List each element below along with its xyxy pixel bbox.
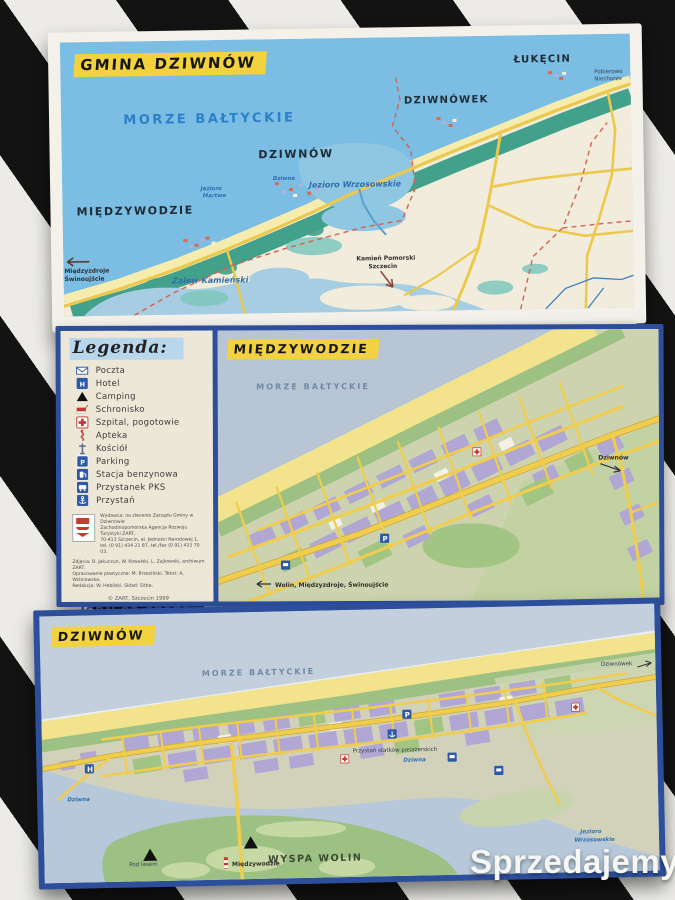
hotel-icon: H	[76, 377, 89, 390]
dziwnow-map-svg: P H MORZE BAŁTYCKIE WYSPA WOLIN Dziwna D…	[39, 604, 659, 884]
legend-item-hospital: Szpital, pogotowie	[70, 416, 206, 429]
river-label: Dziwna	[273, 176, 296, 182]
copyright-line: © ZART, Szczecin 1999	[70, 595, 206, 601]
legend-item-fuel: Stacja benzynowa	[70, 468, 206, 481]
hotel-icon: H	[85, 764, 94, 774]
dead-lake-label-2: Martwe	[203, 193, 227, 199]
credit-lines: Zdjęcia: B. Jakuczun, W. Kowalski, L. Za…	[70, 559, 206, 589]
miedzywodzie-map-svg: P MORZE BAŁTYCKIE Dziwnów Wolin, Międzyz…	[218, 329, 660, 602]
river-label-center: Dziwna	[403, 757, 426, 764]
svg-text:Dziwnówek: Dziwnówek	[601, 660, 633, 668]
svg-text:P: P	[80, 459, 85, 467]
legend-item-pharmacy: Apteka	[70, 429, 206, 442]
watermark-text: Sprzedajemy	[470, 843, 675, 881]
hospital-icon-2	[572, 703, 580, 711]
panel-miedzywodzie-map: P MORZE BAŁTYCKIE Dziwnów Wolin, Międzyz…	[218, 329, 660, 602]
svg-text:H: H	[87, 765, 93, 774]
parking-icon: P	[402, 710, 411, 720]
church-icon	[76, 442, 89, 455]
legend-item-marina: Przystań	[70, 494, 206, 507]
post-icon	[76, 364, 89, 377]
middle-folded-sheet: Legenda: Poczta H Hotel Camping Schronis…	[56, 324, 665, 607]
dziwnow-map-title: DZIWNÓW	[51, 625, 155, 647]
svg-text:Szczecin: Szczecin	[368, 263, 397, 270]
sea-label: MORZE BAŁTYCKIE	[123, 110, 295, 128]
watermark: Sprzedajemy .pl	[470, 843, 675, 881]
bus-stop-icon-2	[494, 766, 503, 775]
legend-item-shelter: Schronisko	[70, 403, 206, 416]
miedzywodzie-map-title: MIĘDZYWODZIE	[227, 339, 380, 360]
gmina-map-title: GMINA DZIWNÓW	[73, 51, 266, 77]
park-area	[423, 523, 520, 568]
svg-text:P: P	[383, 534, 388, 543]
lagoon-label: Zalew Kamieński	[171, 275, 249, 285]
parking-icon: P	[380, 534, 389, 544]
parking-icon: P	[76, 455, 89, 468]
river-label-west: Dziwna	[67, 797, 90, 804]
publisher-lines: Wydawca: na zlecenie Zarządu Gminy w Dzi…	[100, 514, 206, 556]
svg-text:Międzyzdroje: Międzyzdroje	[64, 267, 109, 275]
legend-item-parking: P Parking	[70, 455, 206, 468]
lake-label: Jezioro Wrzosowskie	[307, 179, 402, 190]
bus-stop-icon	[448, 752, 457, 761]
town-label-lukecin: ŁUKĘCIN	[513, 54, 572, 66]
town-label-dziwnowek: DZIWNÓWEK	[404, 92, 489, 106]
hospital-icon	[341, 755, 349, 763]
panel-gmina-overview: MORZE BAŁTYCKIE MIĘDZYWODZIE DZIWNÓW DZI…	[48, 23, 647, 332]
svg-text:P: P	[405, 710, 410, 719]
bus-stop-icon	[76, 481, 89, 494]
pharmacy-icon	[76, 429, 89, 442]
svg-text:Dziwnów: Dziwnów	[598, 453, 629, 461]
dead-lake-label-1: Jezioro	[200, 186, 222, 192]
svg-text:Międzywodzie: Międzywodzie	[232, 860, 280, 868]
direction-east: Pobierowo Niechorze	[594, 69, 623, 83]
svg-text:H: H	[80, 381, 85, 389]
camping-icon	[76, 390, 89, 403]
camp-label: Pod lasem	[129, 862, 158, 869]
sea-label: MORZE BAŁTYCKIE	[256, 381, 370, 391]
town-label-miedzywodzie: MIĘDZYWODZIE	[76, 204, 194, 219]
svg-text:Wolin, Międzyzdroje, Świnoujśc: Wolin, Międzyzdroje, Świnoujście	[275, 580, 388, 589]
direction-wolin: Wolin, Międzyzdroje, Świnoujście	[257, 580, 389, 589]
legend-item-hotel: H Hotel	[70, 377, 206, 390]
bus-stop-icon	[281, 560, 290, 569]
panel-legend: Legenda: Poczta H Hotel Camping Schronis…	[61, 331, 214, 603]
legend-item-bus-stop: Przystanek PKS	[70, 481, 206, 494]
svg-text:Jezioro: Jezioro	[579, 829, 602, 836]
hospital-icon	[473, 448, 481, 456]
legend-item-post: Poczta	[70, 364, 206, 377]
town-label-dziwnow: DZIWNÓW	[258, 147, 334, 161]
fuel-icon	[76, 468, 89, 481]
publisher-logo	[72, 514, 95, 542]
marina-icon	[76, 494, 89, 507]
legend-item-church: Kościół	[70, 442, 206, 455]
shelter-icon	[76, 403, 89, 416]
legend-item-camping: Camping	[70, 390, 206, 403]
hospital-icon	[76, 416, 89, 429]
marina-icon	[388, 729, 397, 738]
legend-title: Legenda:	[70, 338, 206, 360]
island-label: WYSPA WOLIN	[268, 852, 362, 865]
svg-text:Niechorze: Niechorze	[594, 76, 622, 82]
publisher-block: Wydawca: na zlecenie Zarządu Gminy w Dzi…	[70, 514, 206, 556]
svg-text:Pobierowo: Pobierowo	[594, 69, 623, 75]
svg-text:Kamień Pomorski: Kamień Pomorski	[356, 254, 415, 263]
